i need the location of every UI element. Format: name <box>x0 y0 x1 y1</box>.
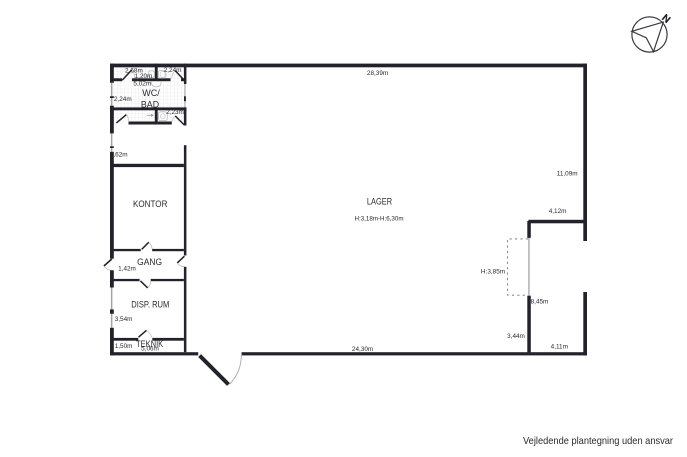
svg-text:24,30m: 24,30m <box>352 346 373 353</box>
svg-text:H:3,18m-H:6,30m: H:3,18m-H:6,30m <box>355 216 404 223</box>
svg-text:2,24m: 2,24m <box>114 96 132 103</box>
svg-text:BAD: BAD <box>141 99 160 109</box>
svg-text:Vejledende plantegning uden an: Vejledende plantegning uden ansvar <box>523 436 673 447</box>
svg-text:8,45m: 8,45m <box>531 298 549 305</box>
svg-text:11,09m: 11,09m <box>557 170 578 177</box>
svg-text:KONTOR: KONTOR <box>133 199 168 209</box>
svg-text:1,20m: 1,20m <box>135 73 153 80</box>
svg-text:3,54m: 3,54m <box>115 316 133 323</box>
svg-text:DISP. RUM: DISP. RUM <box>131 299 169 309</box>
svg-text:4,12m: 4,12m <box>549 208 567 215</box>
svg-text:2,62m: 2,62m <box>110 151 128 158</box>
svg-text:5,02m: 5,02m <box>133 81 151 88</box>
svg-text:1,42m: 1,42m <box>118 266 136 273</box>
svg-text:GANG: GANG <box>137 257 162 267</box>
svg-text:1,50m: 1,50m <box>115 343 133 350</box>
svg-text:LAGER: LAGER <box>367 197 392 207</box>
svg-text:4,11m: 4,11m <box>551 344 568 351</box>
svg-text:3,44m: 3,44m <box>507 333 525 340</box>
svg-text:WC/: WC/ <box>142 88 160 98</box>
svg-text:5,06m: 5,06m <box>141 345 159 352</box>
svg-text:2,23m: 2,23m <box>166 109 184 116</box>
svg-text:2,24m: 2,24m <box>164 67 182 74</box>
svg-text:H:3,85m: H:3,85m <box>481 269 505 276</box>
svg-text:28,39m: 28,39m <box>367 70 388 77</box>
